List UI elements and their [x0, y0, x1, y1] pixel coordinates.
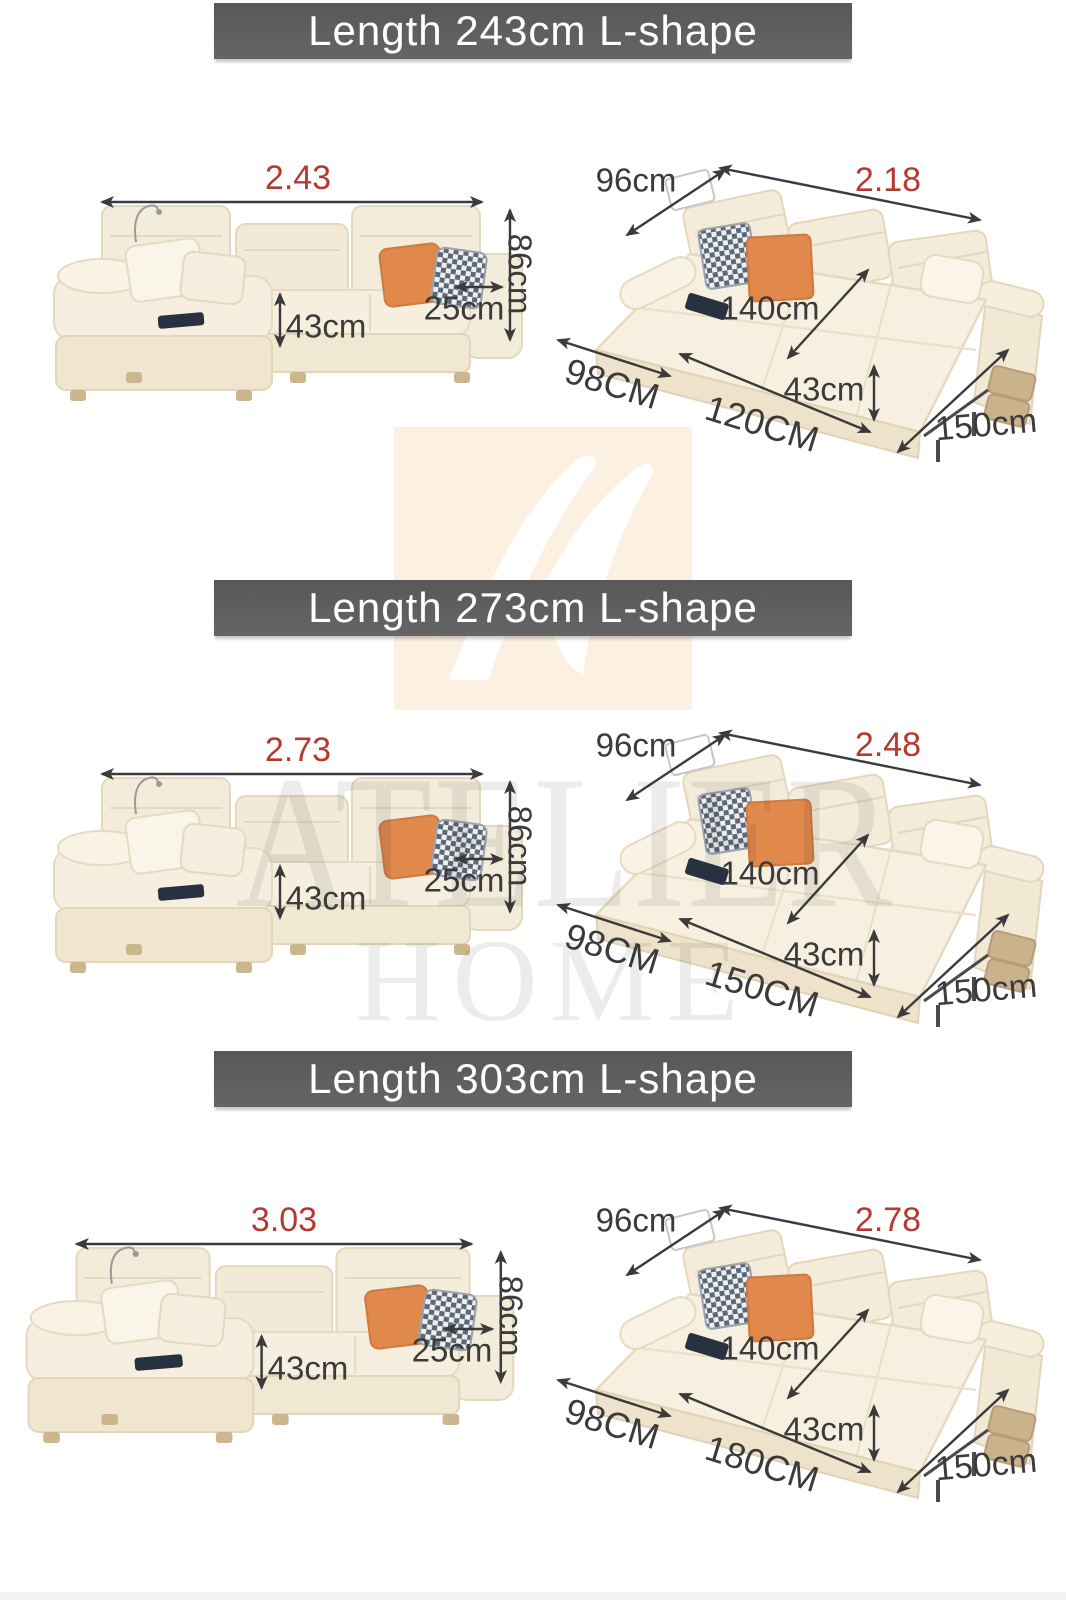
front-height-label: 86cm — [504, 234, 537, 315]
section-banner-273: Length 273cm L-shape — [214, 580, 852, 636]
section-banner-303: Length 303cm L-shape — [214, 1051, 852, 1107]
section-title: Length 243cm L-shape — [308, 10, 758, 52]
front-seat-height-label: 43cm — [268, 1352, 349, 1385]
bed-depth-label: 150cm — [934, 969, 1039, 1012]
bed-width-label: 140cm — [720, 1332, 819, 1365]
sofa-bed-diagram-273: 96cm 2.48 140cm 98CM 150CM 43cm 150cm — [540, 705, 1060, 1035]
bed-depth-label: 150cm — [934, 1444, 1039, 1487]
front-armrest-width-label: 25cm — [424, 292, 505, 325]
front-total-length-label: 2.73 — [265, 733, 331, 767]
bed-depth-label: 150cm — [934, 404, 1039, 447]
bed-total-length-label: 2.78 — [855, 1203, 921, 1237]
bed-backrest-depth-label: 96cm — [596, 1204, 677, 1237]
sofa-front-diagram-303: 3.03 86cm 25cm 43cm — [12, 1192, 532, 1472]
front-armrest-width-label: 25cm — [412, 1334, 493, 1367]
front-seat-height-label: 43cm — [286, 882, 367, 915]
sofa-bed-diagram-303: 96cm 2.78 140cm 98CM 180CM 43cm 150cm — [540, 1180, 1060, 1510]
front-total-length-label: 3.03 — [251, 1203, 317, 1237]
bed-backrest-depth-label: 96cm — [596, 729, 677, 762]
bed-seat-height-label: 43cm — [784, 373, 865, 406]
bottom-edge-strip — [0, 1592, 1066, 1600]
front-armrest-width-label: 25cm — [424, 864, 505, 897]
product-dimension-sheet: ATELIER HOME Length 243cm L-shape 2.43 8… — [0, 0, 1066, 1600]
sofa-bed-diagram-243: 96cm 2.18 140cm 98CM 120CM 43cm 150cm — [540, 140, 1060, 470]
bed-width-label: 140cm — [720, 292, 819, 325]
bed-total-length-label: 2.18 — [855, 163, 921, 197]
section-banner-243: Length 243cm L-shape — [214, 3, 852, 59]
bed-seat-height-label: 43cm — [784, 1413, 865, 1446]
sofa-front-diagram-243: 2.43 86cm 25cm 43cm — [40, 150, 540, 430]
section-title: Length 303cm L-shape — [308, 1058, 758, 1100]
section-title: Length 273cm L-shape — [308, 587, 758, 629]
bed-seat-height-label: 43cm — [784, 938, 865, 971]
front-seat-height-label: 43cm — [286, 310, 367, 343]
sofa-front-diagram-273: 2.73 86cm 25cm 43cm — [40, 722, 540, 1002]
front-height-label: 86cm — [504, 806, 537, 887]
bed-backrest-depth-label: 96cm — [596, 164, 677, 197]
front-total-length-label: 2.43 — [265, 161, 331, 195]
front-height-label: 86cm — [495, 1276, 528, 1357]
bed-total-length-label: 2.48 — [855, 728, 921, 762]
bed-width-label: 140cm — [720, 857, 819, 890]
